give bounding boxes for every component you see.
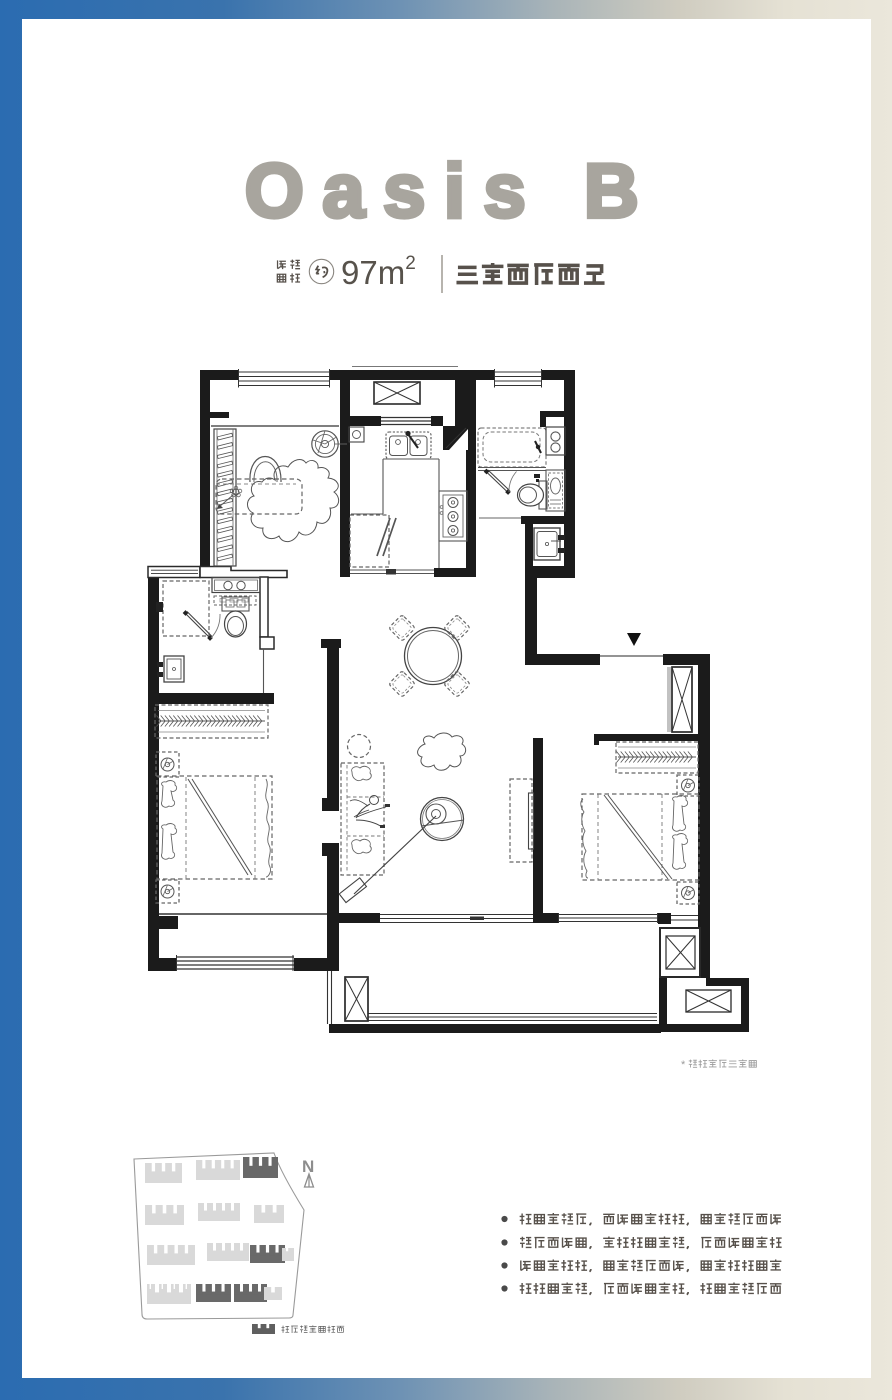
svg-text:N: N [302, 1157, 314, 1176]
svg-text:*: * [681, 1059, 686, 1071]
